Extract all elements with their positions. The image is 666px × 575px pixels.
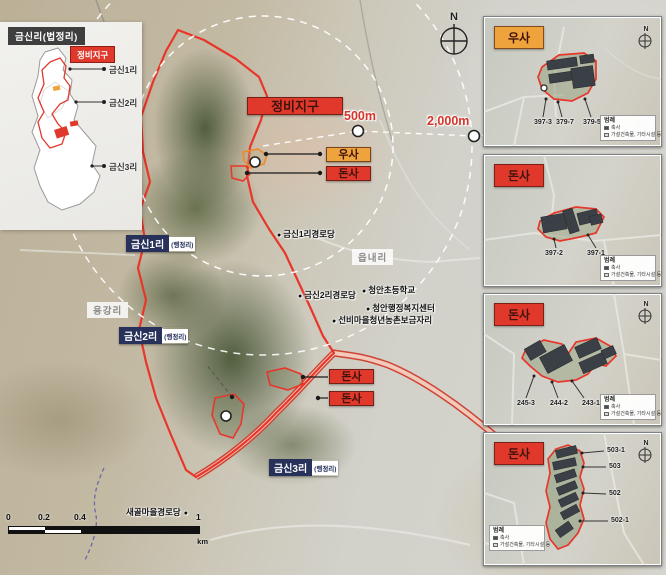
- inset-district-label: 정비지구: [70, 46, 115, 63]
- compass-north-icon: N: [637, 27, 655, 49]
- inset-village-geumsin1ri: 금신1리: [109, 64, 137, 76]
- legend-swatch-temp: [604, 273, 609, 277]
- inset-locator-map: 금신리(법정리) 정비지구 금신1리 금신2리 금신3리: [0, 22, 142, 230]
- compass-rose-icon: [637, 308, 653, 324]
- compass-north-icon: N: [437, 12, 471, 58]
- map-canvas: 정비지구 500m 2,000m 우사 돈사 돈사 돈사 금신1리 (행정리) …: [0, 0, 666, 575]
- legend-swatch-barn: [604, 266, 609, 270]
- callout-pig-barn-3: 돈사: [329, 391, 374, 406]
- legend-item: 가설건축물, 기타시설 등: [493, 542, 541, 549]
- panel-title: 우사: [494, 26, 544, 49]
- parcel-number: 379-7: [556, 119, 574, 126]
- compass-north-icon: N: [637, 302, 655, 324]
- parcel-number: 503-1: [607, 447, 625, 454]
- legend-swatch-barn: [493, 536, 498, 540]
- compass-rose-icon: [437, 22, 471, 58]
- poi-bullet: ●: [366, 306, 370, 313]
- inset-title: 금신리(법정리): [8, 27, 85, 45]
- scale-tick-02: 0.2: [38, 512, 50, 522]
- legend-item: 가설건축물, 기타시설 등: [604, 272, 652, 279]
- legend-title: 범례: [604, 118, 652, 125]
- callout-pig-barn-1: 돈사: [326, 166, 371, 181]
- admin-label-geumsin1ri: 금신1리 (행정리): [126, 235, 195, 252]
- compass-north-icon: N: [637, 441, 655, 463]
- parcel-number: 503: [609, 463, 621, 470]
- parcel-number: 245-3: [517, 400, 535, 407]
- scale-tick-0: 0: [6, 512, 11, 522]
- callout-cattle-barn: 우사: [326, 147, 371, 162]
- inset-village-geumsin2ri: 금신2리: [109, 97, 137, 109]
- poi-bullet: ●: [298, 293, 302, 300]
- panel-title: 돈사: [494, 303, 544, 326]
- admin-label-geumsin2ri: 금신2리 (행정리): [119, 327, 188, 344]
- parcel-number: 379-5: [583, 119, 601, 126]
- detail-panel-pig-barn-2: 돈사 245-3 244-2 243-1 N 범례 축사 가설건축물, 기타시설…: [483, 293, 662, 426]
- parcel-number: 502-1: [611, 517, 629, 524]
- map-legend: 범례 축사 가설건축물, 기타시설 등: [489, 525, 545, 551]
- poi-seonbi-village: ●선비마을청년농촌보금자리: [332, 314, 432, 326]
- detail-panel-pig-barn-1: 돈사 397-2 397-1 범례 축사 가설건축물, 기타시설 등: [483, 154, 662, 287]
- legend-title: 범례: [604, 397, 652, 404]
- parcel-number: 244-2: [550, 400, 568, 407]
- ring-marker-500m: [353, 126, 364, 137]
- legend-swatch-temp: [604, 133, 609, 137]
- legend-item: 가설건축물, 기타시설 등: [604, 411, 652, 418]
- panel-title: 돈사: [494, 164, 544, 187]
- legend-swatch-barn: [604, 126, 609, 130]
- admin-label-geumsin3ri: 금신3리 (행정리): [269, 459, 338, 476]
- district-label: 정비지구: [247, 97, 343, 115]
- ring-label-500m: 500m: [344, 109, 376, 123]
- poi-senior-center-2: ●금신2리경로당: [298, 289, 356, 301]
- barn-marker-upper: [250, 157, 260, 167]
- scale-tick-1: 1: [196, 512, 201, 522]
- ring-marker-2000m: [469, 131, 480, 142]
- callout-pig-barn-2: 돈사: [329, 369, 374, 384]
- detail-panel-cattle-barn: 우사 397-3 379-7 379-5 N 범례 축사 가설건축물, 기타시설…: [483, 16, 662, 147]
- poi-bullet: ●: [332, 318, 336, 325]
- map-legend: 범례 축사 가설건축물, 기타시설 등: [600, 255, 656, 281]
- poi-senior-center-1: ●금신1리경로당: [277, 228, 335, 240]
- scale-bar: 0 0.2 0.4 1 km: [6, 512, 208, 550]
- parcel-number: 502: [609, 490, 621, 497]
- map-legend: 범례 축사 가설건축물, 기타시설 등: [600, 394, 656, 420]
- compass-rose-icon: [637, 33, 653, 49]
- poi-bullet: ●: [362, 288, 366, 295]
- poi-bullet: ●: [277, 232, 281, 239]
- poi-admin-welfare-center: ●청안행정복지센터: [366, 302, 435, 314]
- panel-title: 돈사: [494, 442, 544, 465]
- parcel-number: 397-2: [545, 250, 563, 257]
- poi-elementary-school: ●청안초등학교: [362, 284, 415, 296]
- compass-rose-icon: [637, 447, 653, 463]
- parcel-number: 397-3: [534, 119, 552, 126]
- legend-swatch-temp: [604, 412, 609, 416]
- legend-swatch-temp: [493, 543, 498, 547]
- map-legend: 범례 축사 가설건축물, 기타시설 등: [600, 115, 656, 141]
- parcel-number: 243-1: [582, 400, 600, 407]
- area-label-yonggangri: 용강리: [87, 302, 128, 318]
- legend-title: 범례: [604, 258, 652, 265]
- detail-panel-pig-barn-3: 돈사 503-1 503 502 502-1 N 범례 축사 가설건축물, 기타…: [483, 432, 662, 566]
- barn-marker-lower: [221, 411, 231, 421]
- area-label-eupnaeri: 읍내리: [352, 249, 393, 265]
- scale-unit: km: [197, 537, 208, 546]
- legend-title: 범례: [493, 528, 541, 535]
- legend-item: 가설건축물, 기타시설 등: [604, 132, 652, 139]
- ring-label-2000m: 2,000m: [427, 114, 469, 128]
- legend-swatch-barn: [604, 405, 609, 409]
- scale-tick-04: 0.4: [74, 512, 86, 522]
- scale-bar-segments: [8, 526, 200, 534]
- inset-village-geumsin3ri: 금신3리: [109, 161, 137, 173]
